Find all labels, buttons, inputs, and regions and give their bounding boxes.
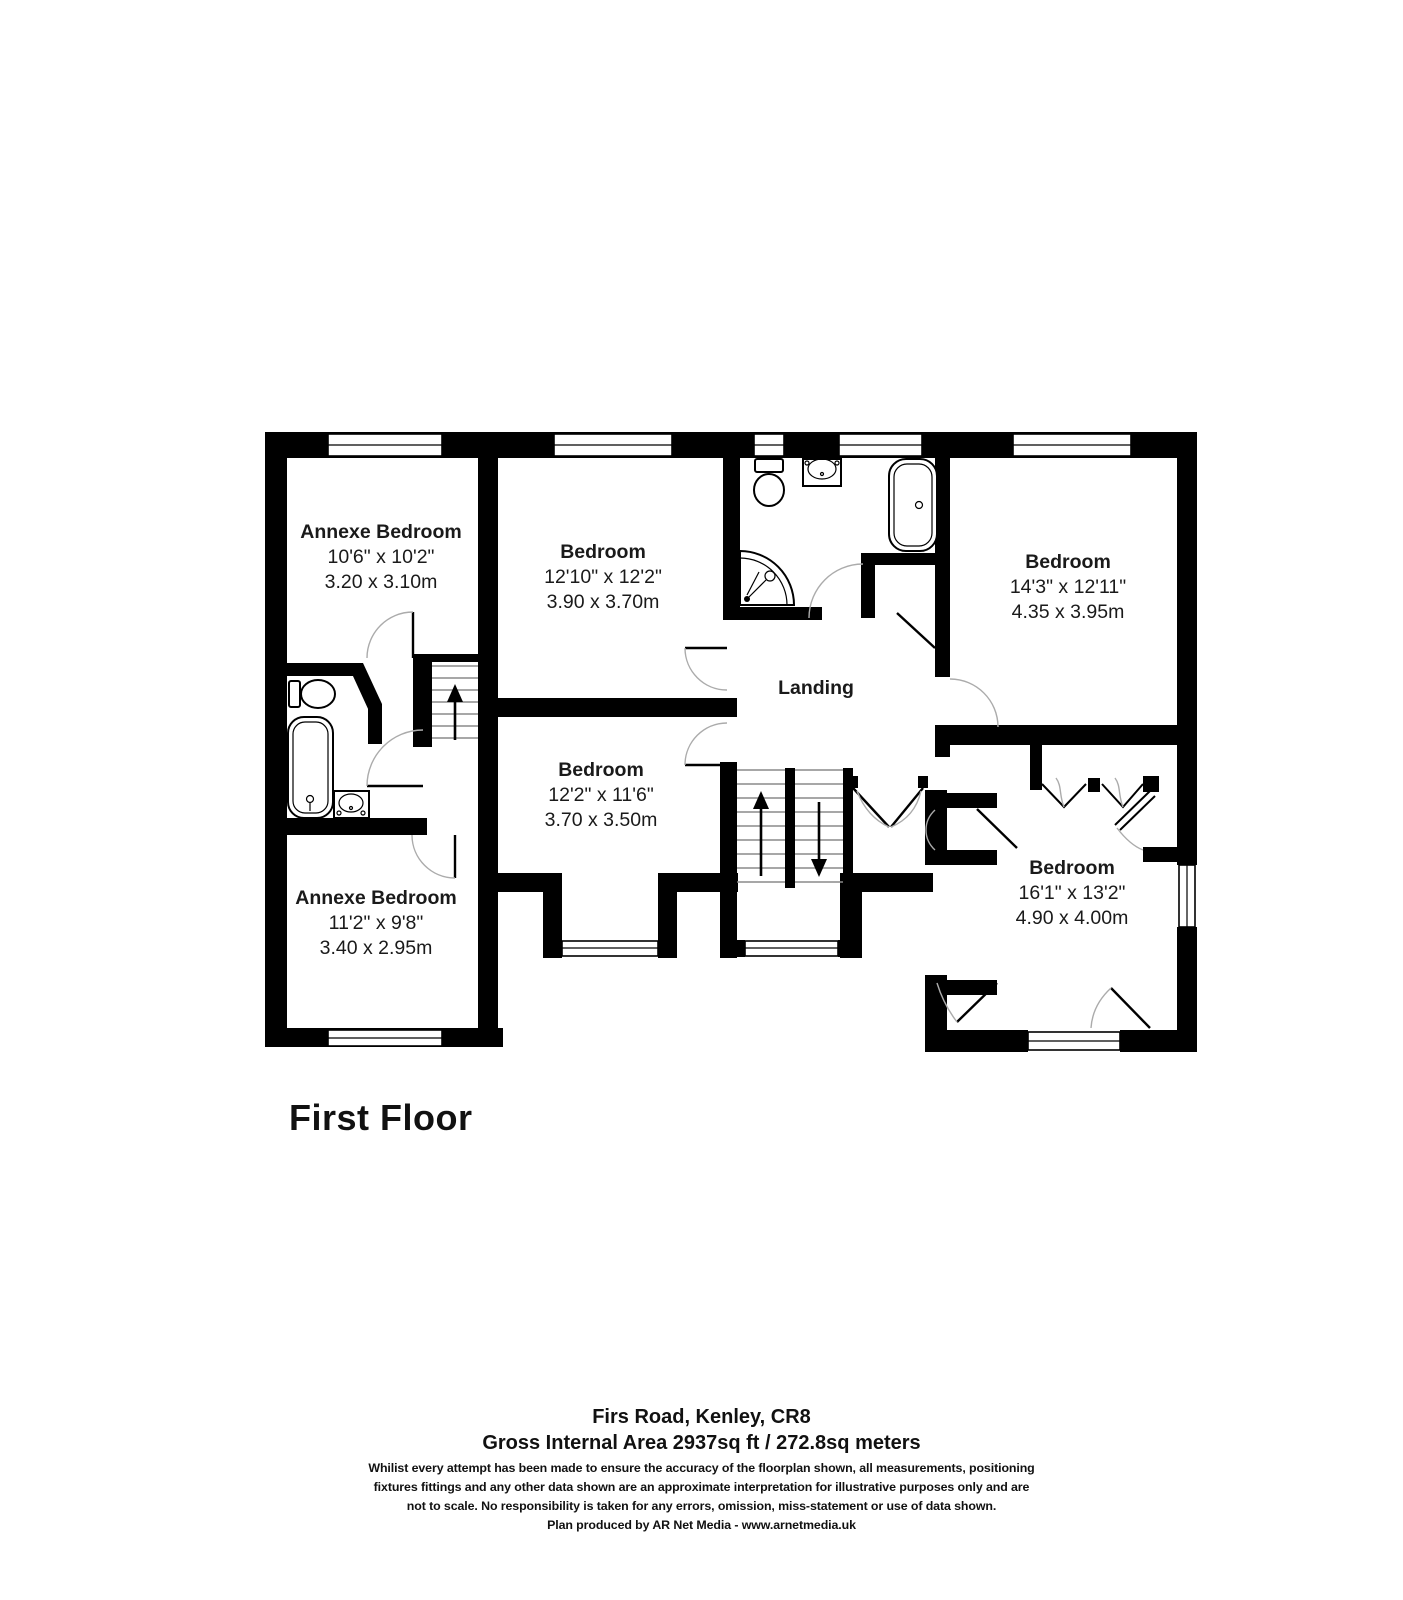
door-icon [412,835,455,878]
bifold-door-icon [1042,778,1086,807]
svg-text:Annexe Bedroom: Annexe Bedroom [300,521,461,543]
stairs-up-arrow-icon [447,684,463,740]
svg-text:Bedroom: Bedroom [560,541,646,563]
floorplan-page: Annexe Bedroom 10'6" x 10'2" 3.20 x 3.10… [0,0,1403,1600]
svg-text:Bedroom: Bedroom [1029,857,1115,879]
area-line: Gross Internal Area 2937sq ft / 272.8sq … [0,1430,1403,1456]
svg-text:4.90 x 4.00m: 4.90 x 4.00m [1016,907,1129,929]
toilet-icon [754,459,784,506]
svg-text:3.90 x 3.70m: 3.90 x 3.70m [547,591,660,613]
room-label-bedroom-middle: Bedroom 12'2" x 11'6" 3.70 x 3.50m [545,759,658,831]
svg-text:Bedroom: Bedroom [1025,551,1111,573]
room-label-landing: Landing [778,677,854,699]
door-icon [685,648,727,690]
svg-text:3.20 x 3.10m: 3.20 x 3.10m [325,571,438,593]
svg-text:16'1" x 13'2": 16'1" x 13'2" [1019,882,1126,904]
room-label-annexe-bedroom-2: Annexe Bedroom 11'2" x 9'8" 3.40 x 2.95m [295,887,456,959]
disclaimer-line: Whilist every attempt has been made to e… [0,1459,1403,1478]
svg-text:12'10" x 12'2": 12'10" x 12'2" [544,566,662,588]
window-icon [1013,434,1131,456]
svg-text:12'2" x 11'6": 12'2" x 11'6" [548,784,654,806]
double-door-icon [853,788,923,827]
annexe-staircase [432,666,478,740]
stairs-up-arrow-icon [753,791,769,876]
window-icon [328,1030,442,1046]
window-icon [754,434,784,456]
window-icon [839,434,922,456]
svg-text:14'3" x 12'11": 14'3" x 12'11" [1010,576,1126,598]
svg-text:3.70 x 3.50m: 3.70 x 3.50m [545,809,658,831]
svg-text:10'6" x 10'2": 10'6" x 10'2" [328,546,435,568]
disclaimer-line: not to scale. No responsibility is taken… [0,1497,1403,1516]
room-label-bedroom-bottom-right: Bedroom 16'1" x 13'2" 4.90 x 4.00m [1016,857,1129,929]
svg-text:4.35 x 3.95m: 4.35 x 3.95m [1012,601,1125,623]
svg-text:Annexe Bedroom: Annexe Bedroom [295,887,456,909]
window-icon [745,941,838,956]
window-icon [1028,1032,1120,1050]
window-icon [562,941,658,956]
footer: Firs Road, Kenley, CR8 Gross Internal Ar… [0,1404,1403,1535]
window-icon [554,434,672,456]
door-icon [685,723,727,765]
disclaimer-line: fixtures fittings and any other data sho… [0,1478,1403,1497]
bathtub-icon [288,717,333,818]
shower-icon [740,551,794,605]
floor-title: First Floor [289,1097,473,1139]
sink-icon [334,791,369,818]
svg-text:Bedroom: Bedroom [558,759,644,781]
window-icon [1179,865,1195,927]
room-label-bedroom-top-middle: Bedroom 12'10" x 12'2" 3.90 x 3.70m [544,541,662,613]
floor-plan-drawing: Annexe Bedroom 10'6" x 10'2" 3.20 x 3.10… [0,0,1403,1600]
toilet-icon [289,680,335,708]
room-label-bedroom-top-right: Bedroom 14'3" x 12'11" 4.35 x 3.95m [1010,551,1126,623]
svg-text:11'2" x 9'8": 11'2" x 9'8" [329,912,424,934]
window-icon [328,434,442,456]
door-icon [367,612,413,658]
svg-text:3.40 x 2.95m: 3.40 x 2.95m [320,937,433,959]
room-label-annexe-bedroom-1: Annexe Bedroom 10'6" x 10'2" 3.20 x 3.10… [300,521,461,593]
bathtub-icon [889,459,937,551]
door-icon [1091,988,1150,1028]
credit-line: Plan produced by AR Net Media - www.arne… [0,1516,1403,1535]
svg-text:Landing: Landing [778,677,854,699]
sink-icon [803,459,841,486]
address-line: Firs Road, Kenley, CR8 [0,1404,1403,1430]
